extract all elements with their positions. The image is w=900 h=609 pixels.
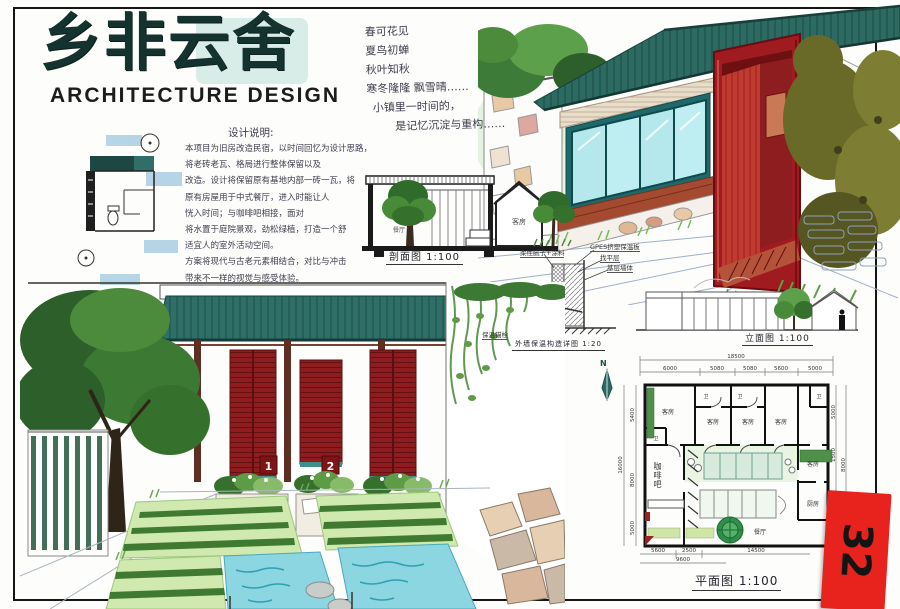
elevation-main-block — [646, 292, 784, 330]
notes-line: 本项目为旧房改造民宿，以时间回忆为设计思路， — [185, 141, 365, 157]
svg-text:8000: 8000 — [841, 458, 847, 472]
page-index-tab: 32 — [820, 490, 891, 609]
detail-label-base-wall: 基层墙体 — [607, 265, 633, 273]
svg-text:卫: 卫 — [737, 394, 742, 400]
svg-text:5000: 5000 — [831, 405, 837, 419]
plan-caption: 平面图 1:100 — [692, 572, 781, 591]
poem-block: 春可花见 夏鸟初蝉 秋叶知秋 寒冬隆隆 飘雪晴…… 小镇里一时间的， 是记忆沉淀… — [365, 17, 568, 136]
svg-text:5080: 5080 — [710, 366, 724, 372]
project-title: 乡非云舍 — [40, 12, 296, 74]
svg-text:6000: 6000 — [663, 366, 677, 372]
notes-line: 方案将现代与古老元素相结合，对比与冲击 — [185, 254, 365, 270]
notes-line: 原有房屋用于中式餐厅，进入时能让人 — [185, 190, 365, 206]
project-subtitle: ARCHITECTURE DESIGN — [50, 84, 340, 108]
plan-furniture — [648, 450, 795, 528]
notes-line: 改造。设计将保留原有基地内部一砖一瓦，将 — [185, 173, 365, 189]
svg-text:客房: 客房 — [807, 460, 819, 468]
room-number-plaque-1: 1 — [260, 456, 277, 474]
svg-text:餐厅: 餐厅 — [754, 528, 766, 536]
slat-fence — [28, 430, 108, 556]
section-room-label: 餐厅 — [393, 226, 405, 234]
section-caption: 剖面图 1:100 — [386, 248, 463, 265]
svg-text:客房: 客房 — [742, 418, 754, 426]
sketch-walls — [86, 156, 154, 231]
plan-tree-symbol — [717, 517, 743, 543]
detail-label-leveling: 找平层 — [600, 255, 620, 263]
courtyard-perspective: 1 2 — [20, 280, 565, 609]
detail-label-board: GPES挤塑保温板 — [590, 244, 640, 252]
svg-text:卫: 卫 — [816, 394, 821, 400]
svg-text:客房: 客房 — [775, 418, 787, 426]
presentation-board: 乡非云舍 ARCHITECTURE DESIGN 春可花见 夏鸟初蝉 秋叶知秋 … — [0, 0, 900, 609]
detail-caption: 外墙保温构造详图 1:20 — [512, 339, 605, 351]
elevation-caption: 立面图 1:100 — [742, 331, 813, 346]
svg-text:5600: 5600 — [774, 366, 788, 372]
svg-text:16000: 16000 — [618, 456, 624, 474]
notes-block: 本项目为旧房改造民宿，以时间回忆为设计思路， 将老砖老瓦、格局进行整体保留以及 … — [185, 141, 365, 287]
olive-bush — [783, 35, 900, 268]
door-number: 1 — [265, 460, 273, 473]
north-label: N — [600, 359, 607, 368]
svg-text:14500: 14500 — [747, 548, 765, 554]
notes-heading: 设计说明: — [228, 125, 274, 140]
svg-text:5400: 5400 — [630, 408, 636, 422]
svg-text:卫: 卫 — [653, 436, 658, 442]
svg-text:客房: 客房 — [662, 408, 674, 416]
notes-line: 带来不一样的视觉与感受体验。 — [185, 271, 365, 287]
detail-label-putty: 柔性腻子+涂料 — [520, 250, 564, 258]
svg-text:客房: 客房 — [707, 418, 719, 426]
svg-text:5080: 5080 — [743, 366, 757, 372]
deck-mat-right — [316, 492, 458, 550]
svg-text:5000: 5000 — [808, 366, 822, 372]
notes-line: 将老砖老瓦、格局进行整体保留以及 — [185, 157, 365, 173]
red-door-2 — [370, 350, 416, 482]
svg-text:5600: 5600 — [651, 548, 665, 554]
svg-text:2500: 2500 — [682, 548, 696, 554]
red-window — [300, 360, 342, 467]
svg-text:厨房: 厨房 — [807, 500, 819, 508]
water-pool-left — [224, 552, 338, 609]
svg-text:卫: 卫 — [703, 394, 708, 400]
red-entry-portal — [714, 34, 800, 292]
notes-line: 将水置于庭院景观，劲松绿植，打造一个舒 — [185, 222, 365, 238]
page-number: 32 — [831, 522, 880, 580]
elevation-pitched-annex — [810, 290, 858, 330]
notes-line: 恍入时间；与咖啡吧相接，面对 — [185, 206, 365, 222]
plan-coffee-bar-label: 咖啡吧 — [652, 462, 663, 506]
door-number: 2 — [327, 460, 335, 473]
svg-text:9600: 9600 — [676, 557, 690, 563]
detail-label-anchor: 保温锚栓 — [482, 332, 508, 340]
svg-text:5000: 5000 — [630, 521, 636, 535]
tree-outline-faint — [694, 277, 750, 288]
concept-plan-sketch — [76, 130, 186, 290]
north-arrow: N — [600, 359, 612, 400]
toilet-fixture — [108, 206, 119, 225]
svg-text:8000: 8000 — [630, 473, 636, 487]
water-pool-right — [338, 544, 476, 609]
notes-line: 适宜人的室外活动空间。 — [185, 238, 365, 254]
section-room-label: 客房 — [512, 217, 526, 226]
svg-text:18500: 18500 — [727, 354, 745, 360]
